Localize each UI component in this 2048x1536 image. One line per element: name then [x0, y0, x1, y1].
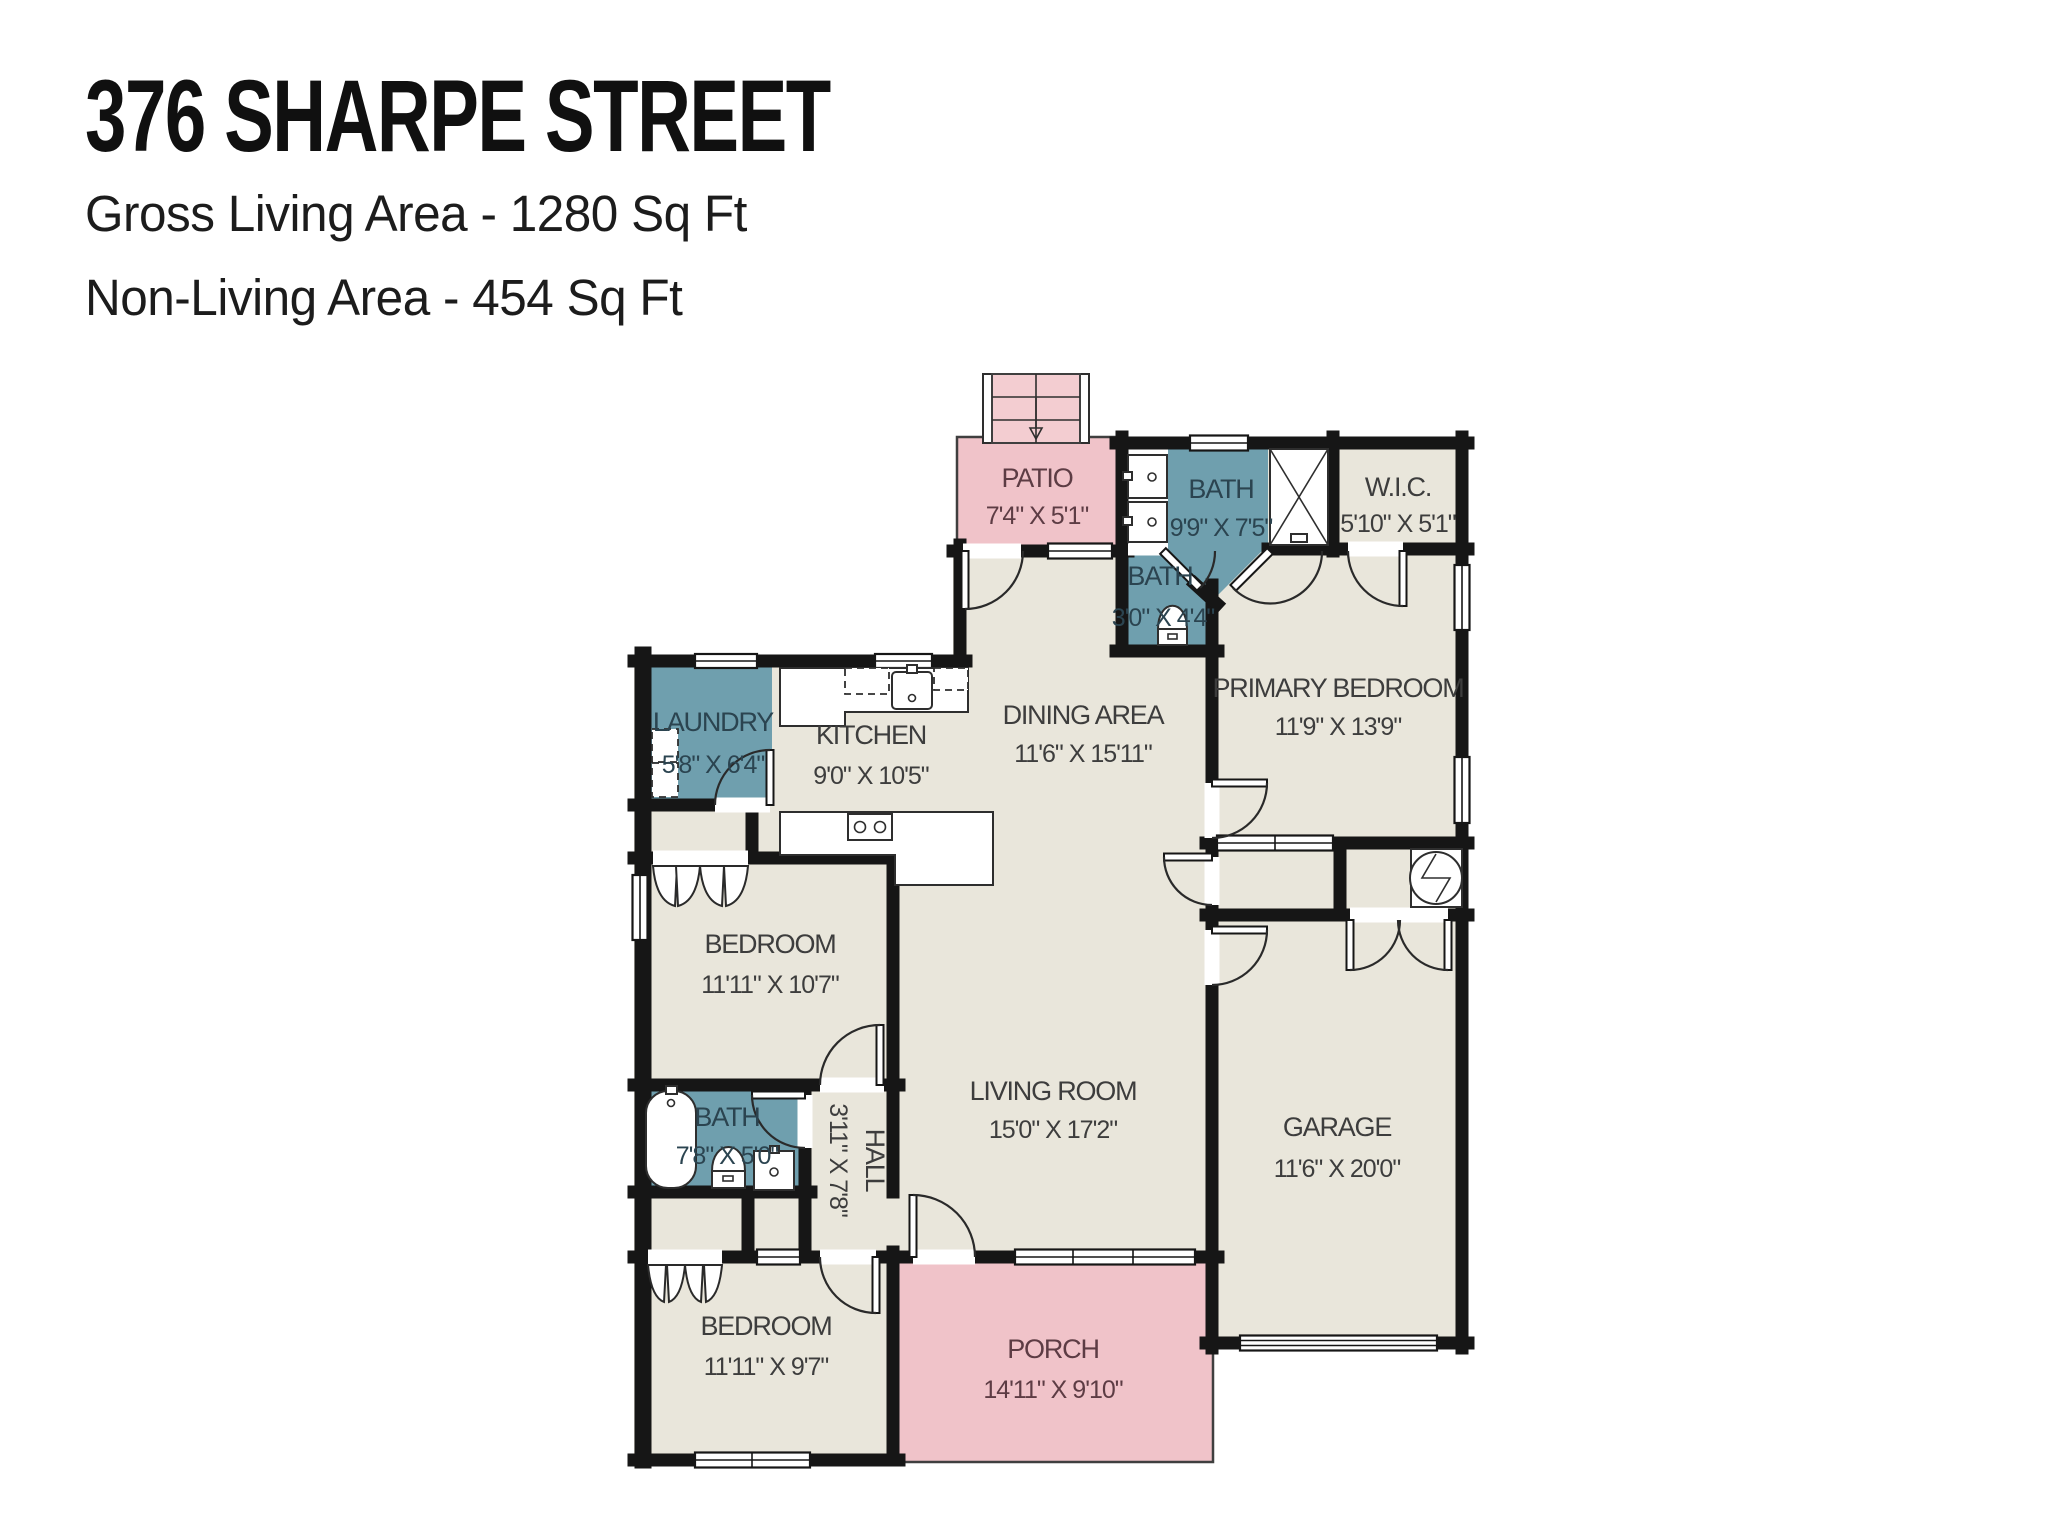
opening-patio-door [963, 544, 1021, 559]
opening-primary-door [1205, 783, 1220, 838]
room-laundry-dims: 5'8" X 6'4" [662, 751, 765, 779]
bathtub-icon [646, 1091, 696, 1188]
garage-closet-door-leaf [1445, 920, 1452, 970]
faucet-icon [666, 1086, 677, 1094]
step-rail-left [983, 374, 992, 443]
garage-entry-door-leaf [1212, 927, 1267, 934]
room-hall-label: HALL [860, 1129, 890, 1193]
front-door-leaf [910, 1195, 917, 1257]
faucet-icon [907, 665, 917, 673]
kitchen-sink-icon [892, 672, 932, 709]
laundry-door-leaf [767, 750, 774, 805]
room-bath3-label: BATH [694, 1102, 759, 1132]
opening-front-door [913, 1250, 975, 1265]
room-hall-dims: 3'11" X 7'8" [824, 1103, 852, 1217]
room-bath3-dims: 7'8" X 5'0" [676, 1142, 779, 1170]
faucet-icon [1123, 517, 1132, 525]
room-bedroom1-dims: 11'11" X 10'7" [701, 971, 839, 999]
room-wic-dims: 5'10" X 5'1" [1340, 510, 1456, 538]
opening-laundry-door [715, 798, 770, 813]
upper-cabinet-dashed [934, 668, 968, 690]
room-porch-label: PORCH [1007, 1334, 1099, 1364]
room-living-dims: 15'0" X 17'2" [989, 1116, 1117, 1144]
room-bath1-label: BATH [1188, 474, 1253, 504]
opening-closet-door [1205, 857, 1220, 905]
room-porch-dims: 14'11" X 9'10" [983, 1376, 1122, 1404]
closet-door-leaf [1164, 854, 1212, 861]
step-rail-right [1080, 374, 1089, 443]
bedroom2-door-leaf [873, 1257, 880, 1313]
primary-door-leaf [1212, 780, 1267, 787]
room-patio-dims: 7'4" X 5'1" [986, 502, 1089, 530]
faucet-icon [1123, 472, 1132, 480]
opening-bath3-door [798, 1095, 813, 1148]
room-garage-label: GARAGE [1283, 1112, 1392, 1142]
room-bath2-dims: 3'0" X 4'4" [1112, 604, 1215, 632]
patio-door-leaf [962, 551, 969, 609]
bath3-door-leaf [752, 1092, 805, 1099]
bedroom1-door-leaf [877, 1025, 884, 1085]
room-bath2-label: BATH [1127, 561, 1192, 591]
opening-bedroom2-door [820, 1250, 876, 1265]
room-bedroom1-label: BEDROOM [704, 929, 835, 959]
garage-overhead-door [1240, 1336, 1437, 1351]
opening-bedroom2-closet [648, 1250, 722, 1265]
room-living-label: LIVING ROOM [970, 1076, 1137, 1106]
opening-wic-door [1348, 542, 1403, 557]
shower-valve-icon [1291, 534, 1307, 542]
opening-bedroom1-closet [653, 851, 748, 866]
room-laundry-label: LAUNDRY [653, 707, 774, 737]
room-garage-dims: 11'6" X 20'0" [1274, 1155, 1401, 1183]
opening-bedroom1-door [820, 1078, 884, 1093]
room-patio-floor [957, 437, 1118, 551]
opening-garage-door [1205, 930, 1220, 985]
room-bedroom2-dims: 11'11" X 9'7" [704, 1353, 829, 1381]
room-patio-label: PATIO [1001, 463, 1072, 493]
room-primary-label: PRIMARY BEDROOM [1212, 673, 1463, 703]
room-kitchen-label: KITCHEN [816, 720, 926, 750]
upper-cabinet-dashed [845, 668, 889, 694]
patio-steps [983, 374, 1089, 443]
floor-plan: PATIO 7'4" X 5'1" BATH 9'9" X 7'5" W.I.C… [0, 0, 2048, 1536]
room-wic-label: W.I.C. [1365, 472, 1431, 502]
room-kitchen-dims: 9'0" X 10'5" [813, 762, 929, 790]
room-bedroom2-label: BEDROOM [700, 1311, 831, 1341]
garage-closet-door-leaf [1347, 920, 1354, 970]
wic-door-leaf [1400, 551, 1407, 606]
room-primary-dims: 11'9" X 13'9" [1275, 713, 1402, 741]
room-dining-label: DINING AREA [1003, 700, 1165, 730]
toilet-tank [712, 1171, 745, 1188]
room-dining-dims: 11'6" X 15'11" [1014, 740, 1152, 768]
room-bath1-dims: 9'9" X 7'5" [1170, 514, 1273, 542]
